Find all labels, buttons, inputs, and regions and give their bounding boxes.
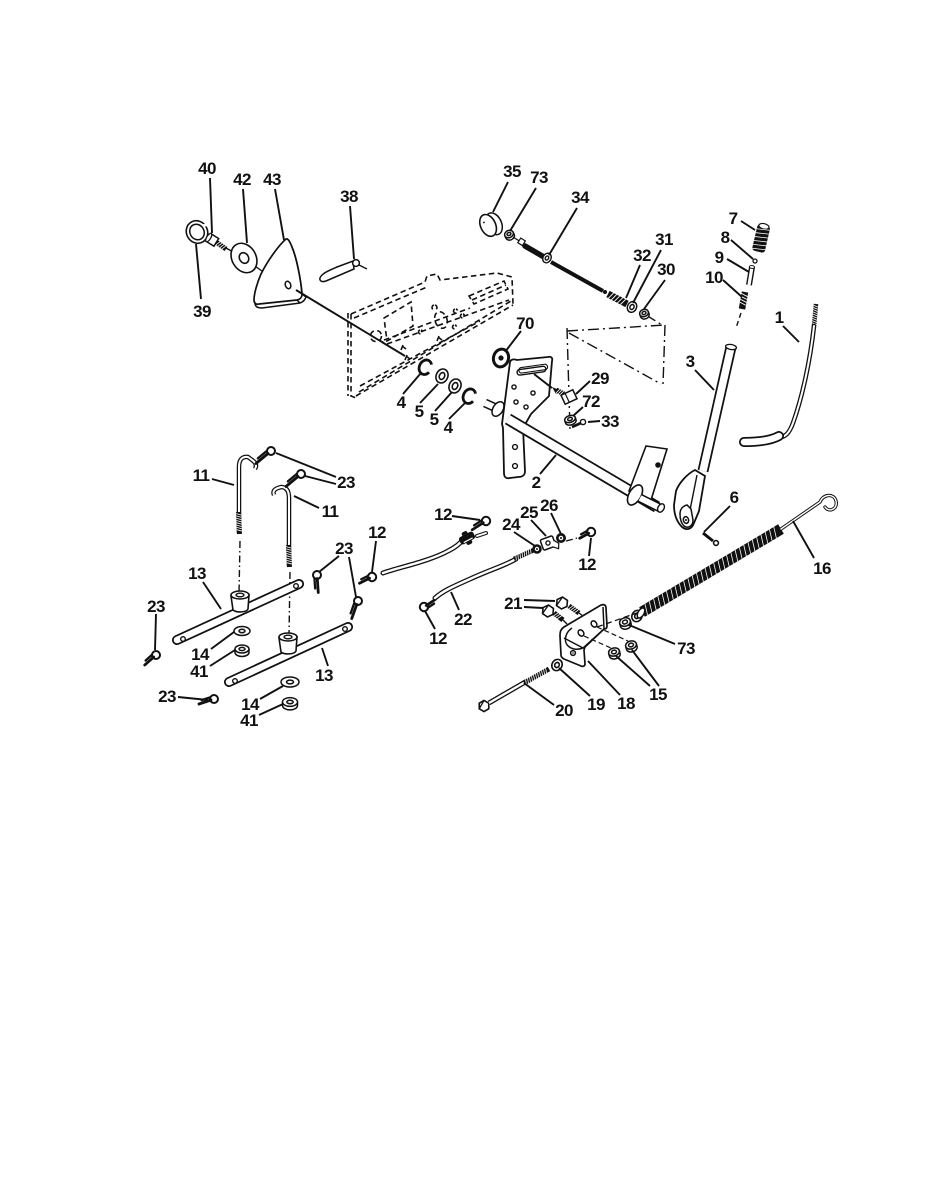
- svg-text:10: 10: [705, 268, 723, 287]
- svg-text:6: 6: [730, 488, 739, 507]
- svg-text:21: 21: [504, 594, 522, 613]
- svg-text:30: 30: [657, 260, 675, 279]
- svg-text:19: 19: [587, 695, 605, 714]
- svg-text:12: 12: [368, 523, 386, 542]
- svg-text:23: 23: [335, 539, 353, 558]
- svg-text:23: 23: [337, 473, 355, 492]
- svg-text:23: 23: [147, 597, 165, 616]
- svg-text:12: 12: [434, 505, 452, 524]
- svg-text:5: 5: [430, 410, 439, 429]
- svg-text:42: 42: [233, 170, 251, 189]
- svg-text:39: 39: [193, 302, 211, 321]
- svg-text:31: 31: [655, 230, 673, 249]
- svg-text:20: 20: [555, 701, 573, 720]
- svg-text:12: 12: [429, 629, 447, 648]
- svg-text:34: 34: [571, 188, 590, 207]
- svg-text:35: 35: [503, 162, 521, 181]
- svg-text:32: 32: [633, 246, 651, 265]
- svg-text:15: 15: [649, 685, 667, 704]
- svg-text:7: 7: [729, 209, 738, 228]
- svg-text:73: 73: [530, 168, 548, 187]
- svg-text:29: 29: [591, 369, 609, 388]
- svg-text:72: 72: [582, 392, 600, 411]
- svg-text:23: 23: [158, 687, 176, 706]
- svg-text:9: 9: [715, 248, 724, 267]
- svg-text:12: 12: [578, 555, 596, 574]
- svg-text:18: 18: [617, 694, 635, 713]
- svg-text:38: 38: [340, 187, 358, 206]
- svg-text:8: 8: [721, 228, 730, 247]
- svg-text:11: 11: [193, 466, 210, 485]
- svg-text:73: 73: [677, 639, 695, 658]
- svg-text:4: 4: [444, 418, 454, 437]
- svg-text:33: 33: [601, 412, 619, 431]
- svg-text:26: 26: [540, 496, 558, 515]
- svg-text:24: 24: [502, 515, 521, 534]
- svg-text:4: 4: [397, 393, 407, 412]
- svg-text:43: 43: [263, 170, 281, 189]
- svg-text:25: 25: [520, 503, 538, 522]
- svg-text:13: 13: [315, 666, 333, 685]
- svg-text:2: 2: [532, 473, 541, 492]
- svg-text:22: 22: [454, 610, 472, 629]
- svg-text:3: 3: [686, 352, 695, 371]
- svg-text:16: 16: [813, 559, 831, 578]
- svg-text:41: 41: [190, 662, 208, 681]
- svg-text:1: 1: [775, 308, 784, 327]
- svg-text:70: 70: [516, 314, 534, 333]
- svg-text:5: 5: [415, 402, 424, 421]
- svg-text:41: 41: [240, 711, 258, 730]
- svg-text:11: 11: [322, 502, 339, 521]
- svg-text:40: 40: [198, 159, 216, 178]
- svg-text:13: 13: [188, 564, 206, 583]
